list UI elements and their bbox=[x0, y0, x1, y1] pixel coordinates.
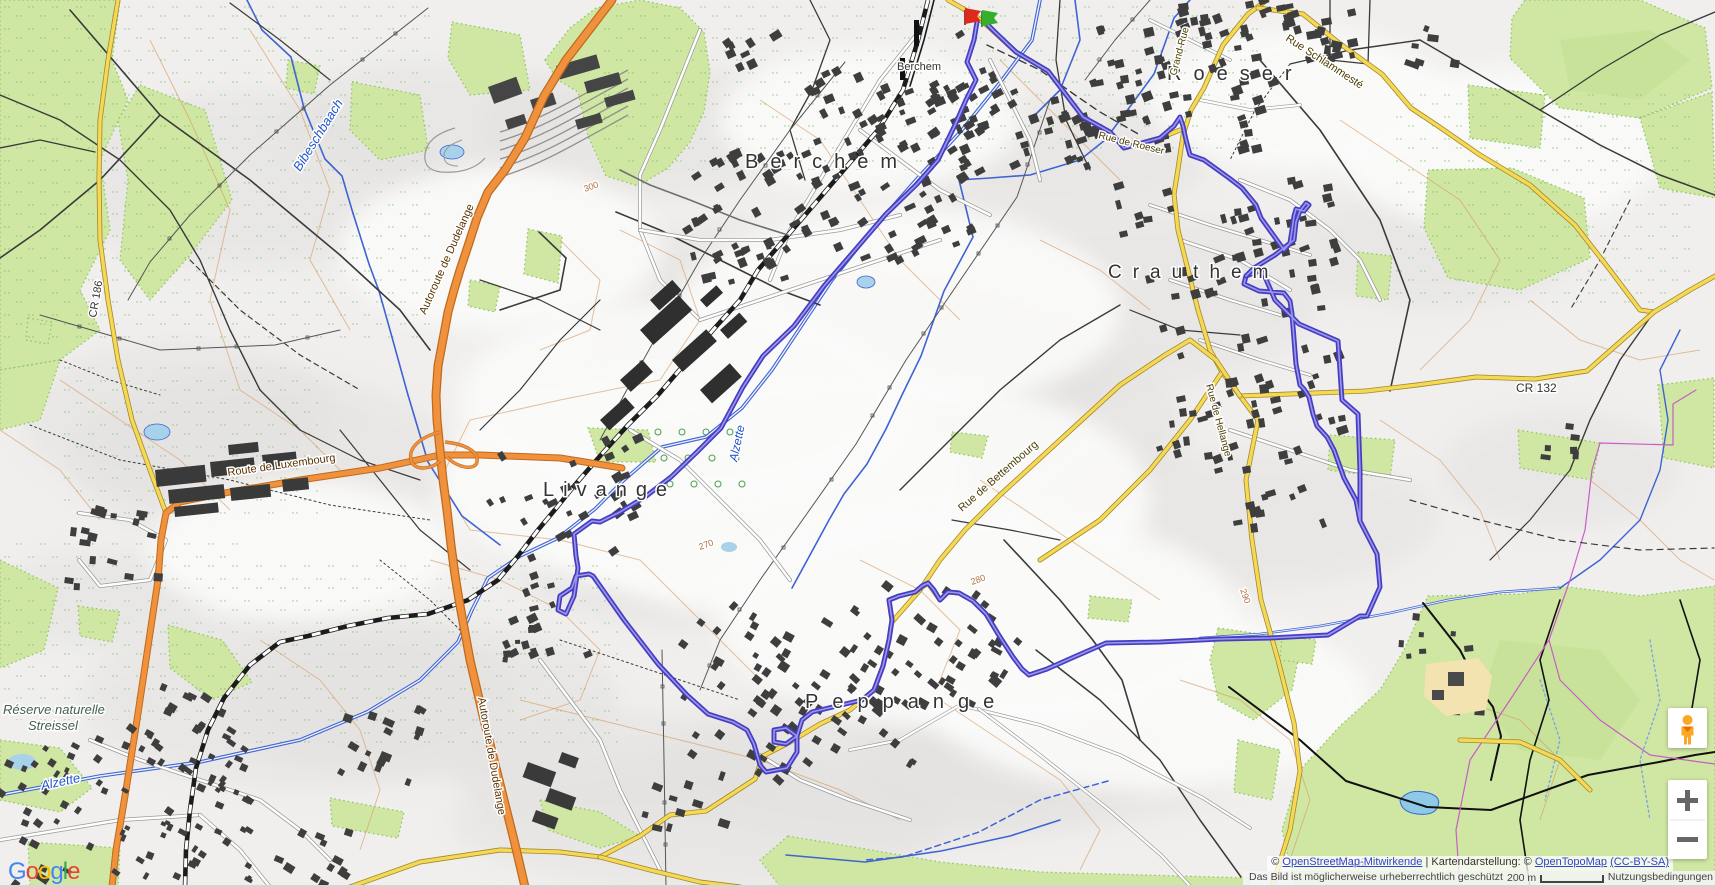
svg-text:Roeser: Roeser bbox=[1167, 63, 1303, 85]
svg-text:Réserve naturelle: Réserve naturelle bbox=[3, 702, 105, 717]
svg-text:Livange: Livange bbox=[543, 479, 676, 501]
svg-text:Crauthem: Crauthem bbox=[1108, 262, 1279, 283]
svg-text:Berchem: Berchem bbox=[745, 151, 909, 173]
svg-text:Streissel: Streissel bbox=[28, 718, 79, 733]
svg-text:Berchem: Berchem bbox=[897, 61, 941, 73]
svg-text:Peppange: Peppange bbox=[805, 691, 1008, 713]
svg-text:CR 132: CR 132 bbox=[1516, 381, 1557, 395]
